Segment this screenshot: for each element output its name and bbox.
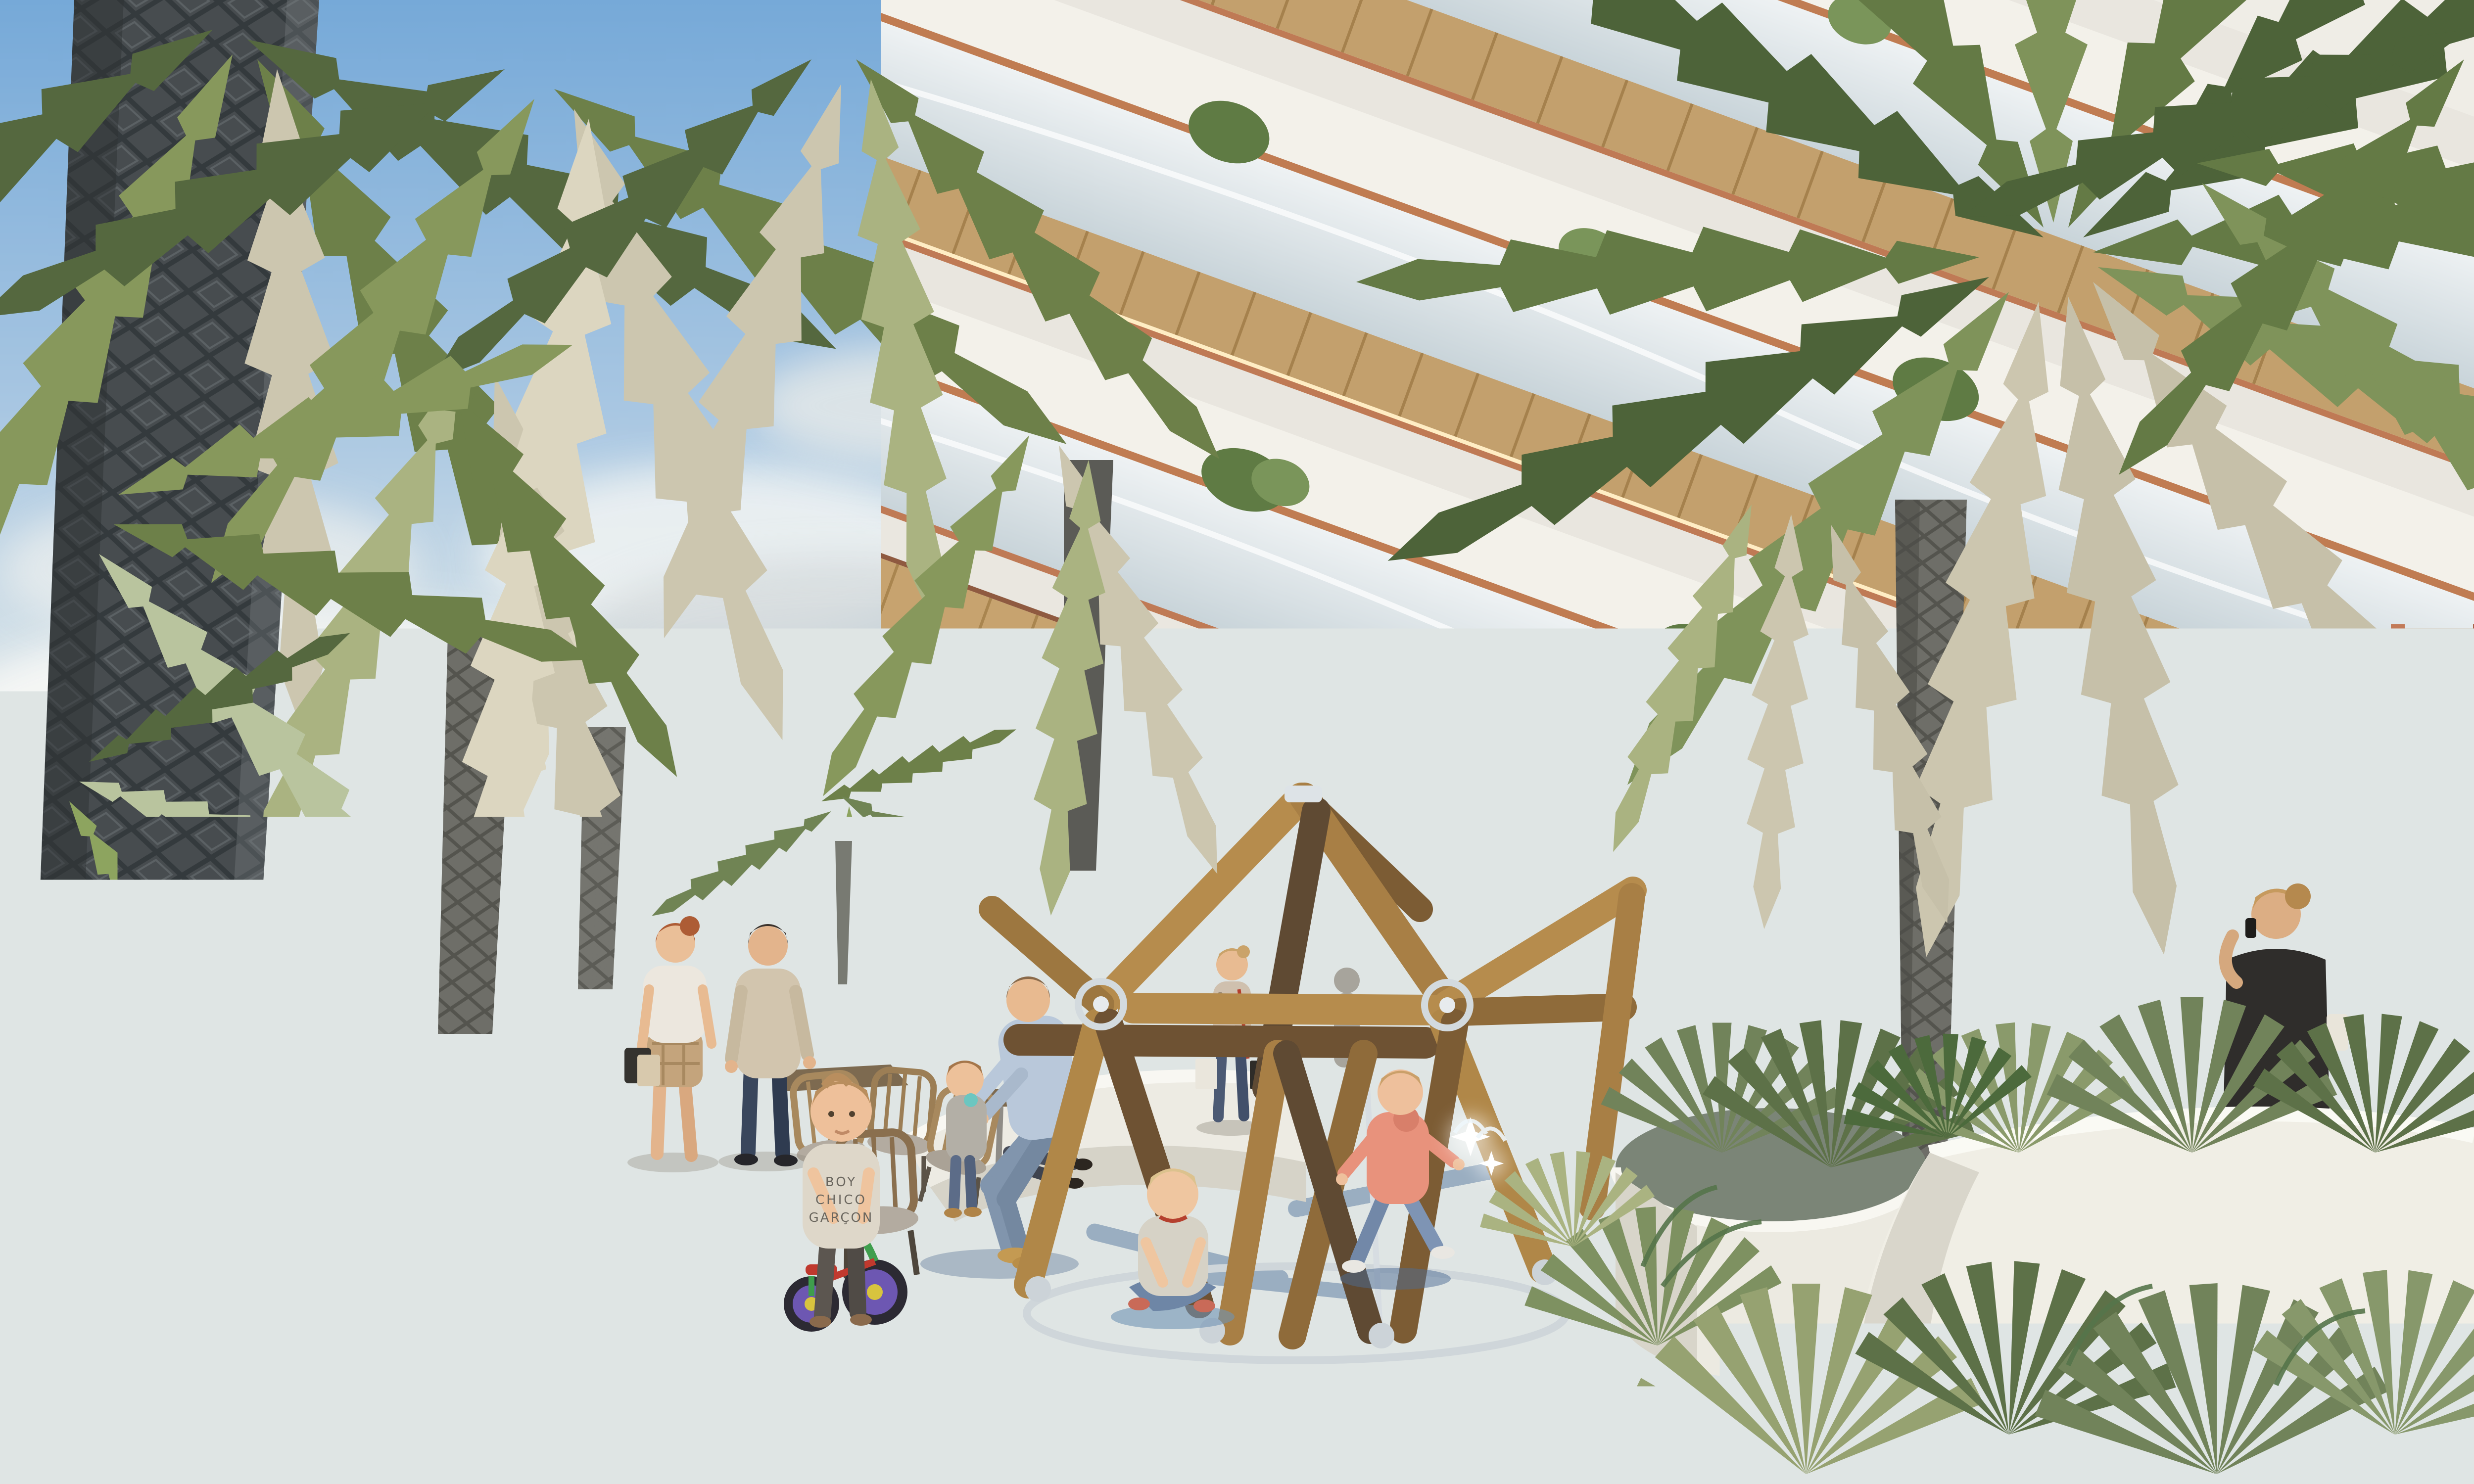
shirt-text-line3: GARÇON: [809, 1210, 874, 1225]
shirt-text-line2: CHICO: [815, 1193, 867, 1207]
shirt-text-line1: BOY: [825, 1175, 857, 1190]
courtyard-rendering: BOY CHICO GARÇON: [0, 0, 2474, 1484]
